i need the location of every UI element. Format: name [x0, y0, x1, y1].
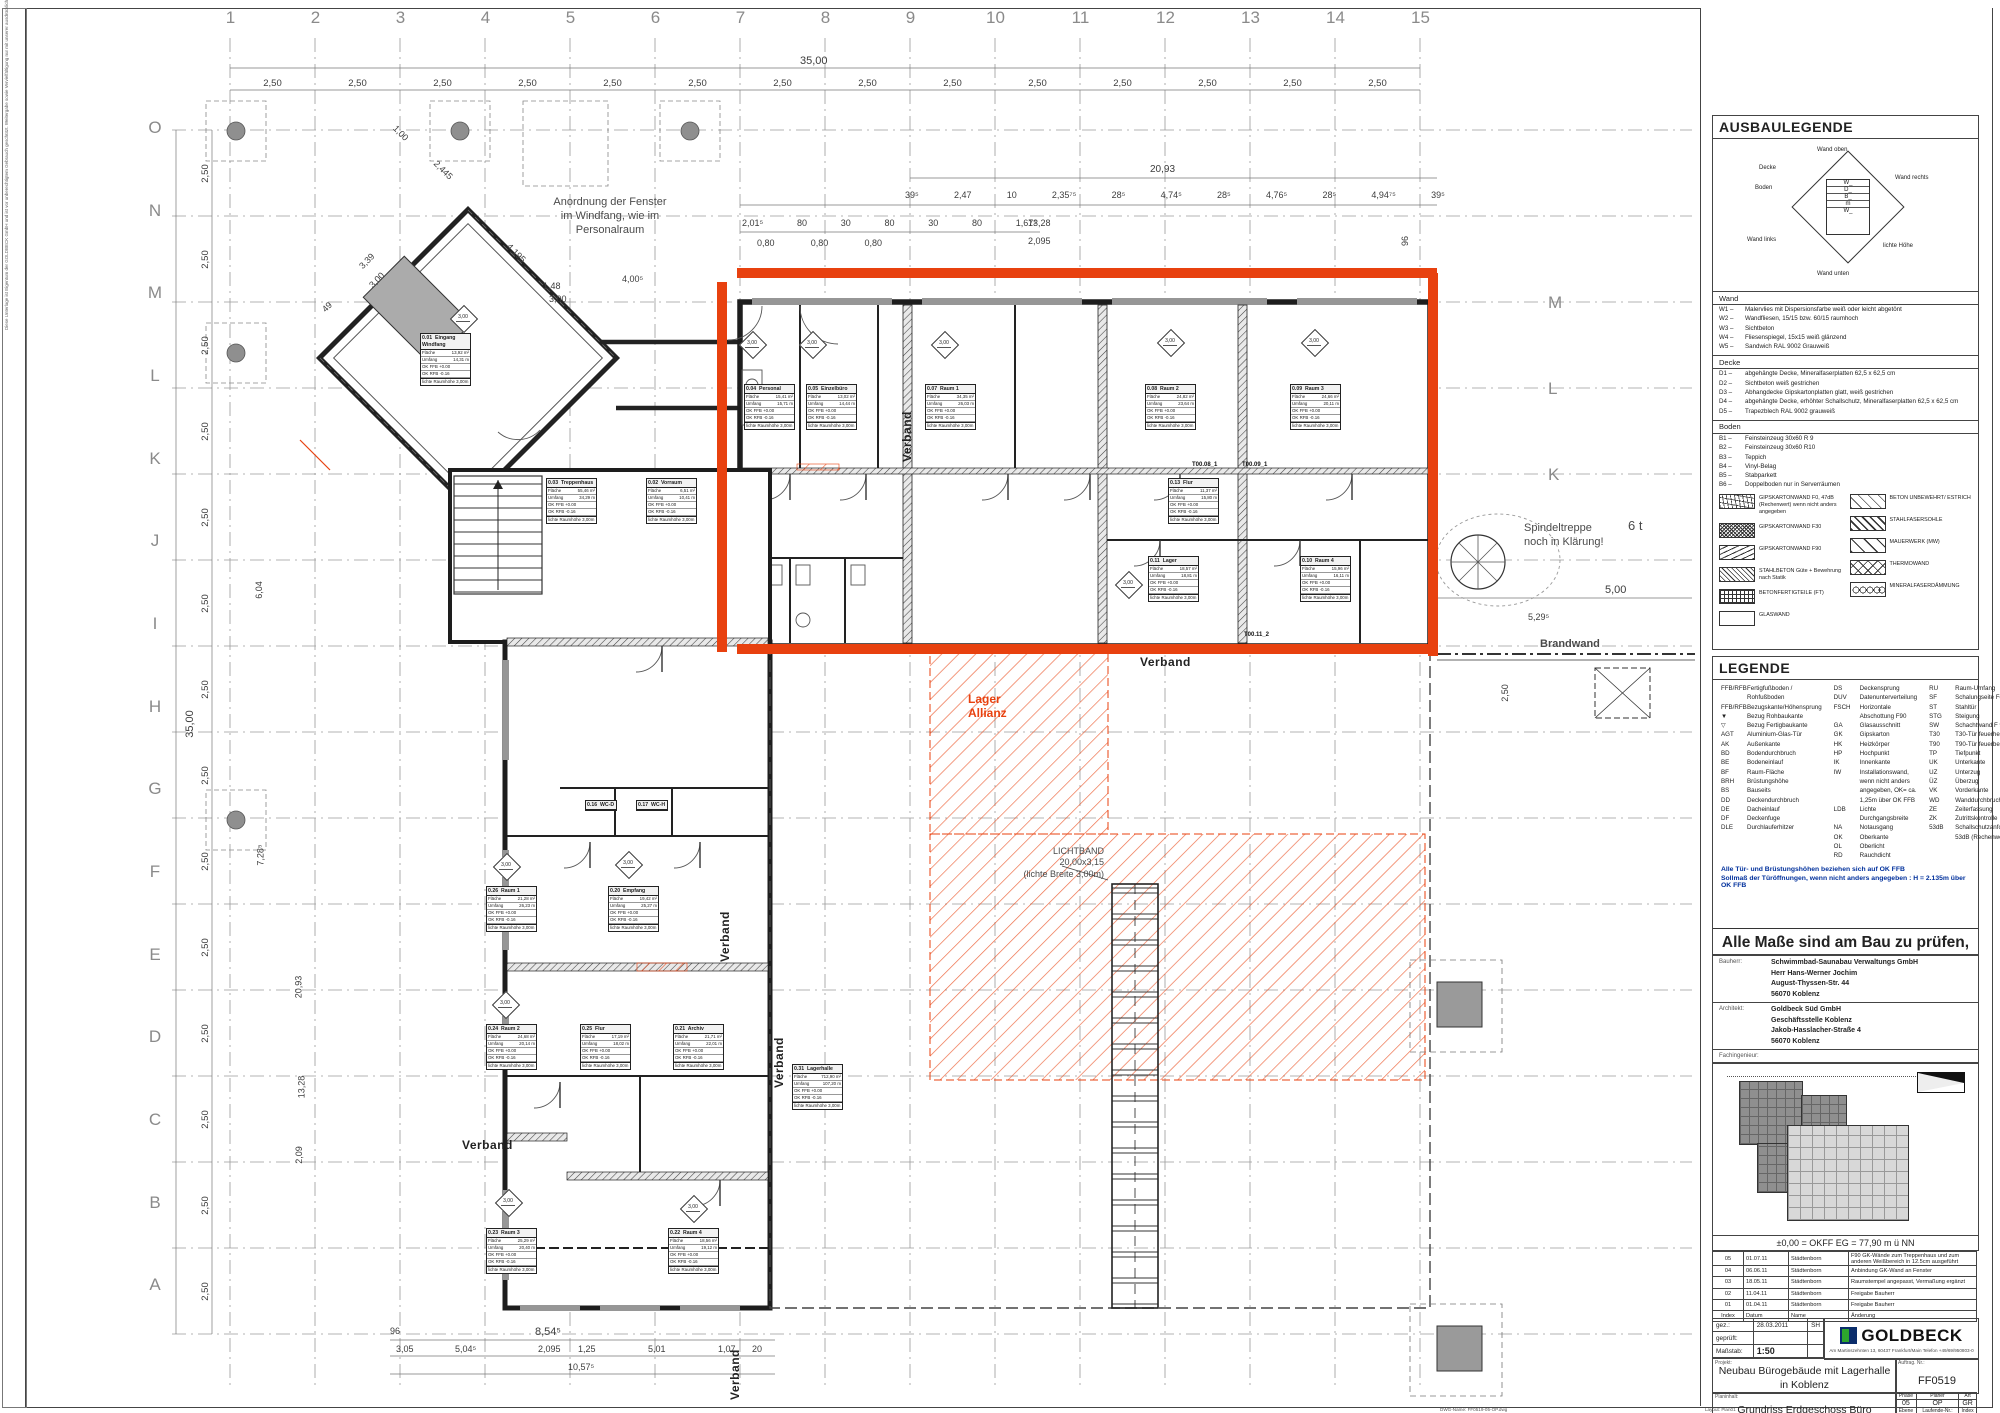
- dim-bay: 2,50: [196, 646, 214, 732]
- hatch-item: GIPSKARTONWAND F90: [1719, 545, 1842, 560]
- dim-400: 4,00⁵: [622, 274, 643, 284]
- ausbau-item: D2 –Sichtbeton weiß gestrichen: [1713, 379, 1978, 388]
- brandwand-label: Brandwand: [1540, 638, 1600, 652]
- ausbau-item: W1 –Malervlies mit Dispersionsfarbe weiß…: [1713, 305, 1978, 314]
- revision-row: 0318.05.11StädtenbornRaumstempel angepas…: [1713, 1277, 1977, 1288]
- room-id-name: 0.22 Raum 4: [669, 1229, 718, 1238]
- dim-value: 39⁵: [1431, 190, 1445, 200]
- ausbaulegende-title: AUSBAULEGENDE: [1713, 116, 1978, 139]
- legend-row: HPHochpunkt: [1828, 749, 1923, 758]
- legend-row: OLOberlicht: [1828, 842, 1923, 851]
- hatch-swatch: [1719, 523, 1755, 538]
- room-stamp: 0.10 Raum 4Fläche15,96 m²Umfang16,11 mOK…: [1300, 556, 1351, 602]
- dim-bay: 2,50: [740, 78, 825, 89]
- hatch-label: GLASWAND: [1759, 611, 1790, 619]
- legend-row: FFB/RFBBezugskante/Höhensprung: [1715, 703, 1828, 712]
- room-id-name: 0.08 Raum 2: [1146, 385, 1195, 394]
- dim-value: 0,80: [757, 238, 775, 248]
- hatch-label: STAHLFASERSOHLE: [1890, 516, 1943, 524]
- hatch-swatch: [1850, 582, 1886, 597]
- dim-bay: 2,50: [1165, 78, 1250, 89]
- legend-row: NANotausgang: [1828, 823, 1923, 832]
- room-stamp: 0.07 Raum 1Fläche34,35 m²Umfang26,03 mOK…: [925, 384, 976, 430]
- grid-number: 7: [698, 8, 783, 28]
- legend-row: DSDeckensprung: [1828, 684, 1923, 693]
- dim-bay: 2,50: [196, 1248, 214, 1334]
- company-logo: GOLDBECK Am Martinszehnten 13, 60437 Fra…: [1824, 1318, 1979, 1360]
- grid-number: 11: [1038, 8, 1123, 28]
- room-stamp: 0.24 Raum 2Fläche24,68 m²Umfang20,14 mOK…: [486, 1024, 537, 1070]
- legend-row: RURaum-Umfang: [1923, 684, 2000, 693]
- plan-codes: PhasePlanerArt 05OPGR EbeneLaufende-Nr.:…: [1895, 1392, 1977, 1413]
- dim-bay: 2,50: [570, 78, 655, 89]
- dim-728: 7,28⁵: [256, 844, 266, 865]
- hatch-swatch: [1850, 538, 1886, 553]
- ausbau-section-header: Wand: [1713, 291, 1978, 305]
- room-stamp: 0.31 LagerhalleFläche712,90 m²Umfang107,…: [792, 1064, 843, 1110]
- legend-row: GAGlasausschnitt: [1828, 721, 1923, 730]
- dim-529: 5,29⁵: [1528, 612, 1549, 622]
- ausbau-item: W3 –Sichtbeton: [1713, 324, 1978, 333]
- finish-stamp: 3,00: [493, 853, 519, 879]
- ausbau-item: B6 –Doppelboden nur in Serverräumen: [1713, 480, 1978, 489]
- hatch-swatch: [1719, 494, 1755, 509]
- verband-label: Verband: [900, 411, 914, 462]
- verband-label: Verband: [718, 911, 732, 962]
- grid-number: 3: [358, 8, 443, 28]
- dim-value: 28⁵: [1322, 190, 1336, 200]
- dim-bay: 2,50: [1250, 78, 1335, 89]
- note-line: Anordnung der Fenster: [535, 196, 685, 210]
- ausbau-item: B1 –Feinsteinzeug 30x60 R 9: [1713, 434, 1978, 443]
- legend-row: 53dBSchallschutzanforderung: 53dB (Reche…: [1923, 823, 2000, 842]
- ausbau-item: W5 –Sandwich RAL 9002 Grauweiß: [1713, 342, 1978, 351]
- room-id-name: 0.05 Einzelbüro: [807, 385, 856, 394]
- ausbau-section-header: Boden: [1713, 420, 1978, 434]
- ausbau-item: W2 –Wandfliesen, 15/15 bzw. 60/15 raumho…: [1713, 314, 1978, 323]
- door-tag: T00.09_1: [1242, 462, 1267, 468]
- hatch-swatch: [1850, 494, 1886, 509]
- grid-number: 6: [613, 8, 698, 28]
- dim-value: 4,74⁵: [1161, 190, 1182, 200]
- dim-value: 4,76⁵: [1266, 190, 1287, 200]
- grid-letter-right: K: [1548, 465, 1559, 485]
- hatch-item: GIPSKARTONWAND F30: [1719, 523, 1842, 538]
- revision-row: 0211.04.11StädtenbornFreigabe Bauherr: [1713, 1288, 1977, 1299]
- dim-bay: 2,50: [196, 904, 214, 990]
- fachingenieur-block: Fachingenieur:: [1713, 1049, 1978, 1063]
- north-arrow-icon: [1918, 1073, 1964, 1092]
- hatch-label: GIPSKARTONWAND F0, 47dB (Rechenwert) wen…: [1759, 494, 1842, 516]
- legend-row: BSBauseits: [1715, 786, 1828, 795]
- verband-label: Verband: [728, 1349, 742, 1400]
- legend-row: DUVDatenunterverteilung: [1828, 693, 1923, 702]
- dim-m300: 3,00: [549, 294, 567, 304]
- dim-bay: 2,50: [400, 78, 485, 89]
- dim-bay: 2,50: [196, 560, 214, 646]
- finish-stamp: 3,00: [799, 331, 825, 357]
- goldbeck-logo-icon: [1840, 1327, 1857, 1344]
- ausbau-item: D4 –abgehängte Decke, erhöhter Schallsch…: [1713, 397, 1978, 406]
- ausbau-item: B5 –Stabparkett: [1713, 471, 1978, 480]
- grid-letter: L: [140, 366, 170, 449]
- dim-value: 0,80: [864, 238, 882, 248]
- dim-148: 1,48: [543, 281, 561, 291]
- ausbau-item: D5 –Trapezblech RAL 9002 grauweiß: [1713, 407, 1978, 416]
- dim-l1328: 13,28: [296, 1076, 306, 1099]
- order-number-box: Auftrag. Nr.: FF0519: [1895, 1358, 1979, 1394]
- ausbau-section-header: Decke: [1713, 355, 1978, 369]
- dim-bay: 2,50: [196, 130, 214, 216]
- architekt-lines: Goldbeck Süd GmbHGeschäftsstelle Koblenz…: [1771, 1005, 1861, 1047]
- right-panel: AUSBAULEGENDE W_ D_ B_ m W_ Wand oben De…: [1700, 8, 1992, 1406]
- room-id-name: 0.11 Lager: [1149, 557, 1198, 566]
- dim-b96: 96: [390, 1326, 400, 1336]
- hatch-swatch: [1850, 560, 1886, 575]
- grid-letter: B: [140, 1193, 170, 1276]
- room-stamp: 0.17 WC-H: [636, 800, 668, 811]
- architekt-block: Architekt: Goldbeck Süd GmbHGeschäftsste…: [1713, 1002, 1978, 1049]
- dim-20: 20: [752, 1344, 762, 1354]
- dim-value: 28⁵: [1217, 190, 1231, 200]
- legend-row: T30T30-Tür feuerhemmend: [1923, 730, 2000, 739]
- grid-letter: E: [140, 945, 170, 1028]
- lager-allianz-label: Lager Allianz: [968, 692, 1007, 721]
- hatch-swatch: [1850, 516, 1886, 531]
- ausbau-item: D3 –Abhangdecke Gipskartonplatten glatt,…: [1713, 388, 1978, 397]
- room-id-name: 0.17 WC-H: [637, 801, 667, 810]
- note-sollmass: Sollmaß der Türöffnungen, wenn nicht and…: [1713, 874, 1978, 890]
- legend-row: DFDeckenfuge: [1715, 814, 1828, 823]
- revision-row: 0101.04.11StädtenbornFreigabe Bauherr: [1713, 1299, 1977, 1310]
- grid-letter-right: L: [1548, 379, 1557, 399]
- dim-l209: 2,09: [294, 1146, 304, 1164]
- dim-bay: 2,50: [196, 732, 214, 818]
- room-stamp: 0.11 LagerFläche18,57 m²Umfang18,81 mOK …: [1148, 556, 1199, 602]
- room-stamp: 0.09 Raum 3Fläche24,66 m²Umfang20,11 mOK…: [1290, 384, 1341, 430]
- finish-stamp: 3,00: [1115, 571, 1141, 597]
- note-line: 20,00x3,15: [1016, 857, 1104, 868]
- lichtband-label: LICHTBAND 20,00x3,15 (lichte Breite 3,00…: [1016, 846, 1104, 880]
- room-id-name: 0.25 Flur: [581, 1025, 630, 1034]
- legend-row: UZUnterzug: [1923, 768, 2000, 777]
- dim-bay: 2,50: [995, 78, 1080, 89]
- legend-row: TPTiefpunkt: [1923, 749, 2000, 758]
- dim-value: 80: [972, 218, 982, 228]
- legend-row: ÜZÜberzug: [1923, 777, 2000, 786]
- legend-row: SFSchalungseite Fertigteil: [1923, 693, 2000, 702]
- dim-value: 39⁵: [905, 190, 919, 200]
- dim-bay: 2,50: [196, 474, 214, 560]
- hatch-legend: GIPSKARTONWAND F0, 47dB (Rechenwert) wen…: [1713, 490, 1978, 639]
- legend-row: HKHeizkörper: [1828, 740, 1923, 749]
- crane-capacity: 6 t: [1628, 518, 1642, 534]
- bauherr-lines: Schwimmbad-Saunabau Verwaltungs GmbHHerr…: [1771, 958, 1918, 1000]
- finish-stamp: 3,00: [739, 331, 765, 357]
- revision-row: 0501.07.11StädtenbornF90 GK-Wände zum Tr…: [1713, 1252, 1977, 1266]
- note-line: Lager: [968, 692, 1007, 706]
- door-tag: T00.11_2: [1244, 632, 1269, 638]
- meta-table: gez.:28.03.2011SH geprüft: Maßstab:1:50: [1712, 1318, 1824, 1358]
- dim-2095: 2,095: [1028, 236, 1051, 246]
- legend-row: BRHBrüstungshöhe: [1715, 777, 1828, 786]
- dim-1328: 13,28: [1028, 218, 1051, 228]
- site-plan-thumbnail: [1712, 1062, 1979, 1236]
- room-stamp: 0.20 EmpfangFläche19,42 m²Umfang25,27 mO…: [608, 886, 659, 932]
- plan-content-box: Planinhalt: Grundriss Erdgeschoss Büro: [1712, 1392, 1897, 1413]
- grid-number: 5: [528, 8, 613, 28]
- room-id-name: 0.13 Flur: [1169, 479, 1218, 488]
- grid-letters: ONMLKJIHGFEDCBA: [140, 118, 170, 1358]
- grid-number: 9: [868, 8, 953, 28]
- grid-letter: C: [140, 1110, 170, 1193]
- hatch-swatch: [1719, 611, 1755, 626]
- room-stamp: 0.16 WC-D: [585, 800, 617, 811]
- grid-letter: M: [140, 283, 170, 366]
- dim-854: 8,54⁵: [535, 1326, 561, 1338]
- room-stamp: 0.03 TreppenhausFläche55,46 m²Umfang34,2…: [546, 478, 597, 524]
- dim-bay: 2,50: [1335, 78, 1420, 89]
- dim-left-bays: 2,502,502,502,502,502,502,502,502,502,50…: [196, 130, 214, 1334]
- room-stamp: 0.25 FlurFläche17,19 m²Umfang18,02 mOK F…: [580, 1024, 631, 1070]
- room-stamp: 0.23 Raum 3Fläche25,29 m²Umfang20,40 mOK…: [486, 1228, 537, 1274]
- legend-row: OKOberkante: [1828, 833, 1923, 842]
- door-tag: T00.08_1: [1192, 462, 1217, 468]
- hatch-item: STAHLFASERSOHLE: [1850, 516, 1973, 531]
- dim-1057: 10,57⁵: [568, 1362, 594, 1372]
- note-fenster: Anordnung der Fenster im Windfang, wie i…: [535, 196, 685, 237]
- hatch-swatch: [1719, 567, 1755, 582]
- dim-value: 80: [797, 218, 807, 228]
- room-id-name: 0.03 Treppenhaus: [547, 479, 596, 488]
- ausbaulegende-box: AUSBAULEGENDE W_ D_ B_ m W_ Wand oben De…: [1712, 115, 1979, 650]
- dim-r250: 2,50: [1500, 684, 1510, 702]
- dim-bay: 2,50: [655, 78, 740, 89]
- room-stamp: 0.26 Raum 1Fläche21,28 m²Umfang26,23 mOK…: [486, 886, 537, 932]
- ausbau-item: B3 –Teppich: [1713, 453, 1978, 462]
- room-stamp: 0.22 Raum 4Fläche18,56 m²Umfang19,12 mOK…: [668, 1228, 719, 1274]
- room-id-name: 0.21 Archiv: [674, 1025, 723, 1034]
- hatch-item: BETON UNBEWEHRT/ ESTRICH: [1850, 494, 1973, 509]
- bauherr-block: Bauherr: Schwimmbad-Saunabau Verwaltungs…: [1713, 955, 1978, 1002]
- legend-row: DLEDurchlauferhitzer: [1715, 823, 1828, 832]
- grid-letter: O: [140, 118, 170, 201]
- dim-bay: 2,50: [196, 990, 214, 1076]
- dim-bay: 2,50: [910, 78, 995, 89]
- dim-value: 2,01⁵: [742, 218, 763, 228]
- dim-value: 2,47: [954, 190, 972, 200]
- legend-row: BDBodendurchbruch: [1715, 749, 1828, 758]
- grid-number: 13: [1208, 8, 1293, 28]
- finish-stamp: 3,00: [615, 851, 641, 877]
- note-line: Allianz: [968, 706, 1007, 720]
- legend-row: ▽Bezug Fertigbaukante: [1715, 721, 1828, 730]
- ausbau-item: D1 –abgehängte Decke, Mineralfaserplatte…: [1713, 369, 1978, 378]
- note-line: (lichte Breite 3,00m): [1016, 869, 1104, 880]
- verband-label: Verband: [1140, 655, 1191, 669]
- hatch-label: BETON UNBEWEHRT/ ESTRICH: [1890, 494, 1971, 502]
- legend-row: ZKZutrittskontrolle: [1923, 814, 2000, 823]
- note-spindeltreppe: Spindeltreppe noch in Klärung!: [1524, 522, 1604, 550]
- hatch-swatch: [1719, 589, 1755, 604]
- legend-row: WDWanddurchbruch: [1923, 796, 2000, 805]
- verband-label: Verband: [462, 1138, 513, 1152]
- room-stamp: 0.04 PersonalFläche15,41 m²Umfang15,71 m…: [744, 384, 795, 430]
- room-stamp: 0.21 ArchivFläche21,71 m²Umfang22,01 mOK…: [673, 1024, 724, 1070]
- dim-305: 3,05: [396, 1344, 414, 1354]
- dwg-name: DWG-Name: FF0519-05-OP.dwg: [1440, 1407, 1507, 1412]
- dim-row3: 2,01⁵80308030801,67⁵: [742, 218, 1037, 228]
- dim-b2095: 2,095: [538, 1344, 561, 1354]
- finish-stamp: 3,00: [495, 1189, 521, 1215]
- grid-letter: I: [140, 614, 170, 697]
- hatch-label: MINERALFASERDÄMMUNG: [1890, 582, 1960, 590]
- note-line: noch in Klärung!: [1524, 536, 1604, 550]
- grid-letter: N: [140, 201, 170, 284]
- legend-row: FFB/RFBFertigfußboden / Rohfußboden: [1715, 684, 1828, 703]
- room-id-name: 0.31 Lagerhalle: [793, 1065, 842, 1074]
- dim-bay: 2,50: [196, 388, 214, 474]
- dim-bay: 2,50: [230, 78, 315, 89]
- copyright-note: Diese Unterlage ist Eigentum der GOLDBEC…: [4, 30, 9, 330]
- note-line: im Windfang, wie im: [535, 210, 685, 224]
- drawing-sheet: Diese Unterlage ist Eigentum der GOLDBEC…: [0, 0, 2000, 1413]
- legend-row: UKUnterkante: [1923, 758, 2000, 767]
- grid-number: 15: [1378, 8, 1463, 28]
- hatch-item: THERMOWAND: [1850, 560, 1973, 575]
- legende-title: LEGENDE: [1713, 657, 1978, 680]
- dim-504: 5,04⁵: [455, 1344, 476, 1354]
- legend-row: T90T90-Tür feuerbeständig: [1923, 740, 2000, 749]
- grid-letter: A: [140, 1275, 170, 1358]
- project-box: Projekt: Neubau Bürogebäude mit Lagerhal…: [1712, 1358, 1897, 1394]
- grid-number: 12: [1123, 8, 1208, 28]
- grid-number: 4: [443, 8, 528, 28]
- dim-bay: 2,50: [196, 1162, 214, 1248]
- room-id-name: 0.23 Raum 3: [487, 1229, 536, 1238]
- ausbau-item: B2 –Feinsteinzeug 30x60 R10: [1713, 443, 1978, 452]
- room-id-name: 0.26 Raum 1: [487, 887, 536, 896]
- finish-stamp: 3,00: [931, 331, 957, 357]
- dim-value: 0,80: [811, 238, 829, 248]
- hatch-item: MINERALFASERDÄMMUNG: [1850, 582, 1973, 597]
- dim-top-bays: 2,502,502,502,502,502,502,502,502,502,50…: [230, 78, 1420, 89]
- dim-604: 6,04: [254, 581, 264, 599]
- hatch-label: GIPSKARTONWAND F90: [1759, 545, 1821, 553]
- dim-bay: 2,50: [1080, 78, 1165, 89]
- legend-row: IKInnenkante: [1828, 758, 1923, 767]
- dim-501: 5,01: [648, 1344, 666, 1354]
- room-id-name: 0.04 Personal: [745, 385, 794, 394]
- note-line: Spindeltreppe: [1524, 522, 1604, 536]
- legend-row: AKAußenkante: [1715, 740, 1828, 749]
- legend-row: DDDeckendurchbruch: [1715, 796, 1828, 805]
- legend-row: GKGipskarton: [1828, 730, 1923, 739]
- room-stamp: 0.01 Eingang WindfangFläche13,92 m²Umfan…: [420, 333, 471, 386]
- dim-value: 4,94⁷⁵: [1371, 190, 1396, 200]
- legend-row: ZEZeiterfassung: [1923, 805, 2000, 814]
- grid-number: 10: [953, 8, 1038, 28]
- dim-bay: 2,50: [315, 78, 400, 89]
- legend-row: IWInstallationswand, wenn nicht anders a…: [1828, 768, 1923, 805]
- legend-row: LDBLichte Durchgangsbreite: [1828, 805, 1923, 824]
- room-stamp: 0.13 FlurFläche11,37 m²Umfang15,80 mOK F…: [1168, 478, 1219, 524]
- hatch-item: GIPSKARTONWAND F0, 47dB (Rechenwert) wen…: [1719, 494, 1842, 516]
- legend-row: STGSteigung: [1923, 712, 2000, 721]
- hatch-label: MAUERWERK (MW): [1890, 538, 1940, 546]
- dim-bay: 2,50: [485, 78, 570, 89]
- room-stamp: 0.05 EinzelbüroFläche13,02 m²Umfang14,44…: [806, 384, 857, 430]
- finish-stamp: 3,00: [1157, 329, 1183, 355]
- dim-500: 5,00: [1605, 584, 1626, 596]
- dim-bay: 2,50: [196, 216, 214, 302]
- legend-row: FSCHHorizontale Abschottung F90: [1828, 703, 1923, 722]
- parties-box: Bauherr: Schwimmbad-Saunabau Verwaltungs…: [1712, 954, 1979, 1064]
- dim-96-top: 96: [1400, 236, 1410, 246]
- dim-bay: 2,50: [196, 818, 214, 904]
- legend-row: VKVorderkante: [1923, 786, 2000, 795]
- grid-letter: H: [140, 697, 170, 780]
- grid-number: 1: [188, 8, 273, 28]
- hatch-item: BETONFERTIGTEILE (FT): [1719, 589, 1842, 604]
- finish-stamp: 3,00: [1301, 329, 1327, 355]
- grid-numbers: 123456789101112131415: [188, 8, 1463, 28]
- finish-stamp: 3,00: [450, 305, 476, 331]
- dim-value: 80: [884, 218, 894, 228]
- site-block-office3: [1757, 1143, 1789, 1193]
- room-id-name: 0.24 Raum 2: [487, 1025, 536, 1034]
- dim-bay: 2,50: [196, 302, 214, 388]
- room-id-name: 0.07 Raum 1: [926, 385, 975, 394]
- dim-125: 1,25: [578, 1344, 596, 1354]
- room-stamp: 0.08 Raum 2Fläche24,82 m²Umfang23,64 mOK…: [1145, 384, 1196, 430]
- dim-l2093: 20,93: [293, 976, 303, 999]
- dim-bay: 2,50: [825, 78, 910, 89]
- stamp-diagram: W_ D_ B_ m W_ Wand oben Decke Boden Wand…: [1713, 139, 1978, 287]
- legend-row: STStahltür: [1923, 703, 2000, 712]
- dim-value: 10: [1007, 190, 1017, 200]
- hatch-label: THERMOWAND: [1890, 560, 1930, 568]
- revision-table: 0501.07.11StädtenbornF90 GK-Wände zum Tr…: [1712, 1251, 1977, 1322]
- hatch-label: GIPSKARTONWAND F30: [1759, 523, 1821, 531]
- level-note: ±0,00 = OKFF EG = 77,90 m ü NN: [1712, 1236, 1979, 1251]
- grid-number: 14: [1293, 8, 1378, 28]
- dim-value: 30: [928, 218, 938, 228]
- room-id-name: 0.16 WC-D: [586, 801, 616, 810]
- dim-2093: 20,93: [1150, 164, 1175, 175]
- dim-value: 2,35⁷⁵: [1052, 190, 1077, 200]
- dim-value: 30: [841, 218, 851, 228]
- grid-number: 8: [783, 8, 868, 28]
- grid-letter: K: [140, 449, 170, 532]
- legend-row: BEBodeneinlauf: [1715, 758, 1828, 767]
- revision-row: 0406.06.11StädtenbornAnbindung GK-Wand a…: [1713, 1266, 1977, 1277]
- ausbau-item: B4 –Vinyl-Belag: [1713, 462, 1978, 471]
- grid-letter: F: [140, 862, 170, 945]
- ausbau-item: W4 –Fliesenspiegel, 15x15 weiß glänzend: [1713, 333, 1978, 342]
- dim-overall-top: 35,00: [800, 55, 828, 67]
- legende-box: LEGENDE FFB/RFBFertigfußboden / Rohfußbo…: [1712, 656, 1979, 930]
- note-line: LICHTBAND: [1016, 846, 1104, 857]
- note-line: Personalraum: [535, 224, 685, 238]
- finish-stamp: 3,00: [680, 1195, 706, 1221]
- finish-stamp: 3,00: [492, 991, 518, 1017]
- site-block-halle: [1787, 1125, 1909, 1221]
- grid-letter: D: [140, 1027, 170, 1110]
- room-id-name: 0.20 Empfang: [609, 887, 658, 896]
- note-hoehen: Alle Tür- und Brüstungshöhen beziehen si…: [1713, 865, 1978, 874]
- legend-row: AGTAluminium-Glas-Tür: [1715, 730, 1828, 739]
